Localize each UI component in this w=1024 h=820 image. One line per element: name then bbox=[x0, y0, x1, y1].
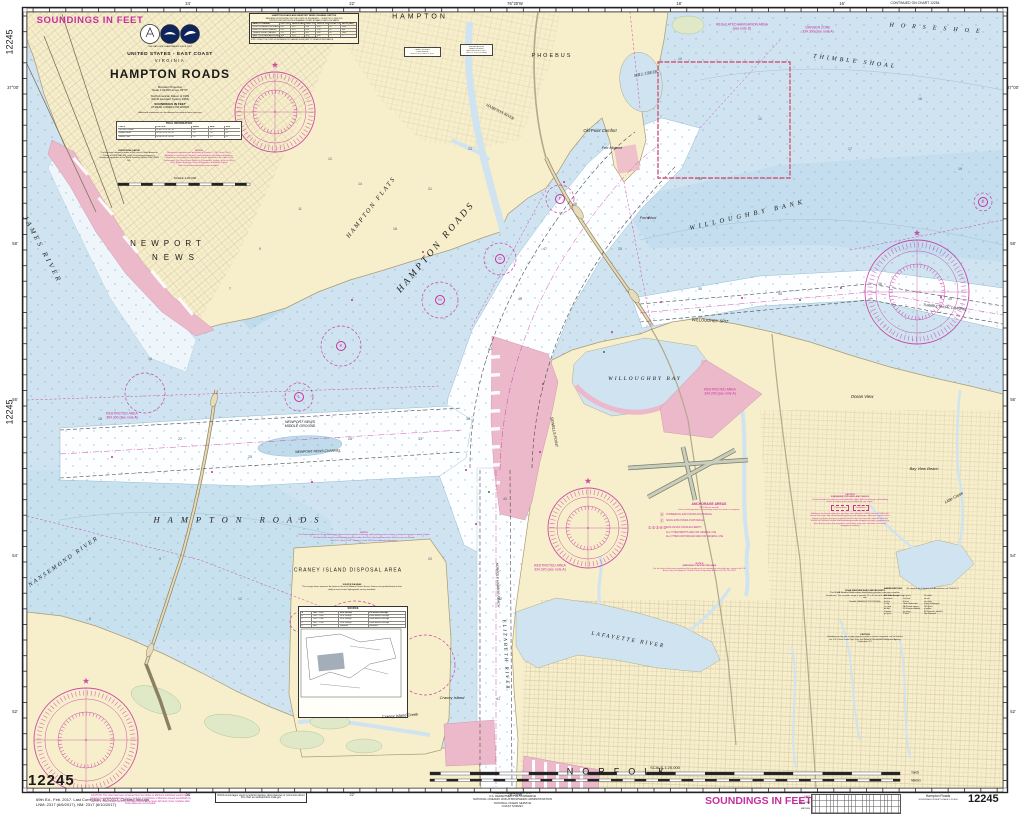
chart-number-bottom-left: 12245 bbox=[28, 772, 75, 789]
scale-note: Scale 1:20,000 at Lat. 36°57' bbox=[95, 89, 245, 92]
soundings-datum: AT MEAN LOWER LOW WATER bbox=[95, 107, 245, 110]
conversion-table: FEETFATHOMSMETERS bbox=[797, 794, 901, 814]
source-table-rows: A1981 – 2013NOS SurveysFull bottom cover… bbox=[300, 611, 406, 628]
list-line: S sand bbox=[903, 613, 920, 616]
table-row: NAME OF CHANNELLEFT OUTSIDE QTRMIDDLE HA… bbox=[252, 23, 356, 25]
table-row: B1962 – 2009NOS SurveysPartial bottom co… bbox=[301, 614, 405, 617]
mini-title-block: Hampton Roads SOUNDINGS IN FEET SCALE 1:… bbox=[912, 795, 964, 801]
tide-table-rows: PLACEPOSITIONMHHWMHWMLWOld Point Comfort… bbox=[118, 126, 240, 138]
table-row: C1939 – 1968NOS SurveysPartial bottom co… bbox=[301, 617, 405, 620]
note-e: NOTE E EMERGENCY RESTRICTED AREA For the… bbox=[652, 563, 747, 573]
inquiries-box: NOAA encourages users to submit inquirie… bbox=[215, 792, 307, 803]
info-note: Additional information can be obtained a… bbox=[95, 112, 245, 115]
soundings-note-bottom: SOUNDINGS IN FEET bbox=[705, 795, 812, 807]
conversion-row-labels: FEETFATHOMSMETERS bbox=[797, 794, 811, 814]
channel-table-foot2: NOTE: CONSULT THE CORPS OF ENGINEERS FOR… bbox=[251, 40, 357, 42]
table-row: ①②③④⑤EXPLOSIVES HANDLING BERTH bbox=[648, 526, 770, 531]
chart-country: UNITED STATES - EAST COAST bbox=[95, 52, 245, 58]
margin-caution: CAUTION: This chart has been corrected f… bbox=[88, 795, 193, 806]
craney-note: NOTE D The Restricted Area at Craney Isl… bbox=[298, 532, 430, 543]
table-row: EMisc.ReportedUnverified bbox=[301, 624, 405, 627]
table-row: Newport News36°58.6'N 76°26.2'W2.92.60.1 bbox=[118, 131, 240, 134]
chart-title: HAMPTON ROADS bbox=[95, 68, 245, 82]
table-row: THIMBLE SHOAL CHANNEL41.946.044.26/16451… bbox=[252, 31, 356, 34]
bridge-table-1: HAMPTON RIVERFIXED BRIDGEHOR CL 40 FT VE… bbox=[404, 47, 441, 57]
note-a: NOTE A Navigation regulations are publis… bbox=[163, 150, 235, 168]
list-line: VERT CL 12 FT (CLOSED) bbox=[462, 52, 492, 54]
table-row: PLACEPOSITIONMHHWMHWMLW bbox=[118, 126, 240, 128]
scale-bar-label: SCALE 1:20,000 bbox=[150, 177, 220, 180]
horizontal-datum-note: HORIZONTAL DATUM The horizontal referenc… bbox=[98, 150, 160, 162]
channel-depths-table: HAMPTON ROADS AND NEWPORT NEWS CHANNEL D… bbox=[249, 13, 359, 44]
table-row: D1887 – 1938NOS SurveysPartial bottom co… bbox=[301, 621, 405, 624]
pipeline-caution: CAUTION SUBMARINE PIPELINES AND CABLES C… bbox=[810, 494, 890, 527]
table-row: NORFOLK HARBOR ENTRANCE REACH41.245.143.… bbox=[252, 25, 356, 28]
agency-tagline: THE NATION'S CHARTMAKER SINCE 1807 bbox=[95, 46, 245, 49]
table-row: ⒶCOMMERCIAL EXPLOSIVES ANCHORAGE bbox=[648, 513, 770, 518]
nautical-chart-page: THE NATION'S CHARTMAKER SINCE 1807 UNITE… bbox=[0, 0, 1024, 820]
anchorage-legend-items: ⒶCOMMERCIAL EXPLOSIVES ANCHORAGEⒺNAVAL E… bbox=[648, 513, 770, 538]
conversion-grid bbox=[811, 794, 901, 814]
anchorage-areas-legend: ANCHORAGE AREAS 110.168 (see note A) Lim… bbox=[648, 503, 770, 540]
mini-subtitle: SOUNDINGS IN FEET SCALE 1:20,000 bbox=[912, 799, 964, 802]
chart-state: VIRGINIA bbox=[95, 59, 245, 64]
channel-table-rows: NAME OF CHANNELLEFT OUTSIDE QTRMIDDLE HA… bbox=[251, 22, 357, 38]
list-line: HOR CL 40 FT VERT CL 10 FT bbox=[406, 53, 440, 55]
table-row: ALL OTHER BERTHS ARE FOR GENERAL USE bbox=[648, 532, 770, 535]
list-line: METERS bbox=[797, 806, 810, 812]
list-line: Rep Reported bbox=[924, 613, 943, 616]
table-row: ALL OTHER ANCHORAGES ARE FOR GENERAL USE bbox=[648, 536, 770, 539]
cable-area-symbol: Cable Area bbox=[853, 505, 869, 511]
publisher-block: Published at Washington, D.C. U.S. DEPAR… bbox=[455, 792, 570, 808]
source-diagram-map bbox=[300, 628, 402, 698]
list-line: gn green bbox=[884, 613, 899, 616]
table-row: ⒺNAVAL EXPLOSIVES ANCHORAGE bbox=[648, 519, 770, 524]
datum-line2: (World Geodetic System 1984) bbox=[95, 98, 245, 101]
title-block: THE NATION'S CHARTMAKER SINCE 1807 UNITE… bbox=[95, 22, 245, 115]
chart-number-bottom-right: 12245 bbox=[968, 793, 999, 806]
pipeline-area-symbol: Pipeline Area bbox=[831, 505, 849, 511]
source-diagram-caption: SOURCE DIAGRAM The surveys shown represe… bbox=[302, 584, 402, 591]
agency-seals-icon bbox=[137, 22, 203, 46]
tidal-information-table: TIDAL INFORMATION PLACEPOSITIONMHHWMHWML… bbox=[116, 121, 242, 140]
source-diagram-box: SOURCE A1981 – 2013NOS SurveysFull botto… bbox=[298, 606, 408, 718]
abbreviations-title: ABBREVIATIONS bbox=[884, 588, 902, 590]
table-row: Old Point Comfort37°00.2'N 76°18.7'W2.82… bbox=[118, 128, 240, 131]
table-row: A1981 – 2013NOS SurveysFull bottom cover… bbox=[301, 612, 405, 614]
table-row: HAMPTON ROADS ANCHORAGE F38.641.039.54/1… bbox=[252, 34, 356, 37]
table-row: NEWPORT NEWS CHANNEL43.145.342.85/164580… bbox=[252, 28, 356, 31]
bridge-table-2: BRIDGES ACROSSHAMPTON RIVERBASCULE: HOR … bbox=[460, 44, 493, 56]
table-row: Sewells Point36°56.8'N 76°19.8'W2.82.50.… bbox=[118, 135, 240, 138]
radio-caution-note: CAUTION Limitations on the use of radio … bbox=[826, 634, 904, 644]
anchorage-legend-sub: Limits and designations of anchorage are… bbox=[648, 509, 770, 511]
abbreviations-block: ABBREVIATIONS (For complete list of Symb… bbox=[884, 576, 998, 616]
abbreviations-note: (For complete list of Symbols and Abbrev… bbox=[906, 588, 958, 590]
